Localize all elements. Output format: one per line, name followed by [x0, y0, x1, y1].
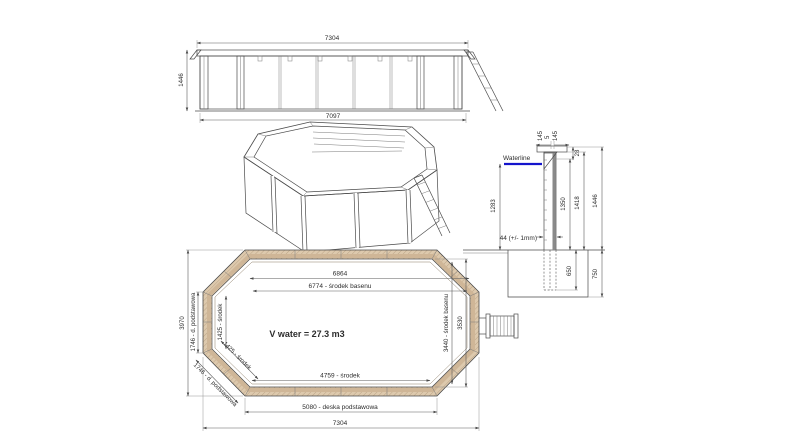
dim-6864-label: 6864: [333, 271, 348, 278]
dim-1350-label: 1350: [561, 197, 567, 211]
cap-dim-mid-label: 5: [545, 135, 551, 139]
dim-7304-plan-label: 7304: [333, 420, 348, 427]
side-ladder: [466, 52, 503, 111]
plan-view: V water = 27.3 m3 6864 6774 - środek bas…: [180, 250, 518, 431]
side-dim-left-label: 1446: [179, 73, 185, 87]
dim-28-label: 28: [575, 149, 581, 156]
coping-cap: [537, 146, 567, 152]
iso-inner-wall: [312, 132, 405, 152]
dim-5080-label: 5080 - deska podstawowa: [302, 404, 378, 411]
dim-650-label: 650: [567, 265, 573, 276]
side-pool-wall: [190, 50, 475, 111]
cap-dim-left-label: 145: [538, 130, 544, 141]
right-coping-flare: [464, 50, 475, 59]
iso-wall-right: [408, 170, 439, 243]
dim-750-label: 750: [593, 268, 599, 279]
pool-technical-drawing: 7304 1446 7097: [0, 0, 794, 446]
side-dimensions: 7304 1446 7097: [179, 35, 468, 123]
dim-1283-label: 1283: [491, 199, 497, 213]
water-volume-label: V water = 27.3 m3: [269, 329, 344, 339]
dim-3440-label: 3440 - środek basenu: [444, 294, 450, 352]
dim-4759-label: 4759 - środek: [320, 373, 360, 380]
plan-ladder: [479, 314, 518, 338]
cross-section-view: Waterline 145 5 145 28 1283 1350 1418: [463, 130, 605, 297]
side-dim-bottom-label: 7097: [326, 113, 341, 120]
side-dim-top-label: 7304: [325, 35, 340, 42]
dim-1425-left-label: 1425 - środek: [218, 303, 224, 341]
wall-thickness-label: 44 (+/- 1mm): [500, 235, 537, 242]
waterline-label: Waterline: [503, 155, 531, 162]
dim-1418-label: 1418: [575, 196, 581, 210]
side-elevation-view: 7304 1446 7097: [179, 35, 503, 123]
dim-3530-label: 3530: [458, 316, 464, 330]
ground-and-pit: [463, 250, 605, 297]
isometric-view: [244, 122, 450, 252]
dim-6774-label: 6774 - środek basenu: [309, 283, 372, 290]
left-coping-flare: [190, 50, 201, 59]
dim-1446-label: 1446: [593, 194, 599, 208]
plank-joints: [279, 56, 392, 109]
cap-dim-right-label: 145: [553, 130, 559, 141]
section-wall: [537, 146, 567, 290]
iso-ladder: [414, 175, 450, 236]
dim-3970-label: 3970: [180, 316, 186, 330]
waterline: Waterline: [503, 155, 542, 164]
technical-drawing-page: 7304 1446 7097: [0, 0, 794, 446]
dim-1746-left-label: 1746 - d. podstawowa: [191, 292, 197, 351]
